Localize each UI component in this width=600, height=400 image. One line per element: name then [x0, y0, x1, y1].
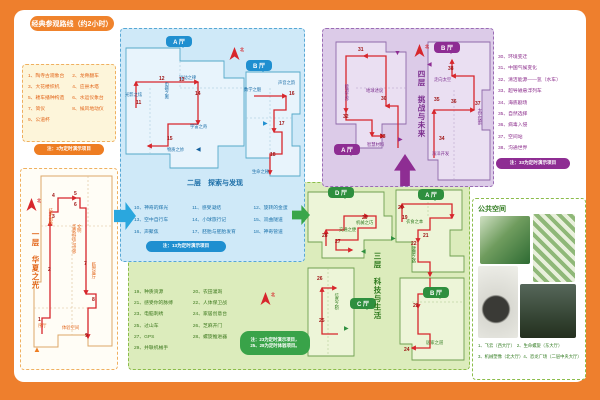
route-entry-arrow-icon: ◀ [196, 147, 201, 153]
legend-item: 7、简仪 [28, 105, 72, 112]
map-area-label: 物质之妙 [167, 148, 184, 153]
map-point: 24 [404, 348, 410, 353]
floor4-caption: 四层 挑战与未来 [416, 70, 427, 150]
map-area-label: 海洋开发 [432, 152, 449, 157]
map-point: 18 [270, 153, 276, 158]
legend-item: 2、龙骨翻车 [72, 72, 110, 79]
map-point: 38 [448, 67, 454, 72]
map-point: 32 [343, 115, 349, 120]
hall-badge-text: A 厅 [341, 145, 353, 154]
floor1-caption: 一层 华夏之光 [30, 230, 41, 298]
map-area-label: 宇宙之奇 [190, 125, 207, 130]
legend-item: 20、农田灌溉 [193, 288, 262, 295]
map-point: 14 [195, 92, 201, 97]
map-point: 9 [85, 334, 88, 339]
map-point: 21 [423, 234, 429, 239]
legend-item: 32、清洁能源——氢（水车） [498, 75, 561, 86]
map-area-label: 居家之道 [426, 341, 443, 346]
north-label: 北 [271, 292, 275, 298]
hall-badge-d: D 厅 [328, 187, 354, 198]
map-point: 2 [48, 268, 51, 273]
hall-badge-text: C 厅 [357, 299, 369, 308]
floor4-legend-list: 30、环境变迁 31、中国气候变化 32、清洁能源——氢（水车） 33、超导磁悬… [498, 52, 561, 155]
map-point: 29 [362, 216, 368, 221]
floor1-legend-box: 1、陶寺古观象台 2、龙骨翻车 3、大花楼织机 4、应县木塔 5、耧车播种构造 … [22, 64, 116, 142]
legend-item: 37、空间站 [498, 132, 561, 143]
hall-badge-a: A 厅 [418, 189, 444, 200]
map-point: 12 [159, 77, 165, 82]
map-point: 36 [451, 100, 457, 105]
route-entry-arrow-icon: ◀ [427, 62, 432, 68]
legend-item: 21、感受你的脉搏 [134, 299, 193, 306]
legend-item: 27、GPS [134, 333, 193, 340]
hall-badge-text: B 厅 [441, 43, 453, 52]
hall-badge-a: A 厅 [166, 36, 192, 47]
map-area-label: 电磁之奥 [164, 82, 169, 99]
map-area-label: 太空探索 [477, 108, 482, 125]
map-area-label: 数学之魅 [244, 88, 261, 93]
map-point: 15 [167, 137, 173, 142]
photo-life-spiral [533, 214, 575, 282]
map-point: 27 [335, 240, 341, 245]
map-point: 33 [380, 135, 386, 140]
hall-badge-text: B 厅 [430, 288, 442, 297]
legend-item: 22、人体保卫战 [193, 299, 262, 306]
legend-item: 38、沟通世界 [498, 143, 561, 154]
legend-item: 9、公道杯 [28, 116, 72, 123]
route-entry-arrow-icon: ◀ [361, 249, 366, 255]
hall-badge-text: D 厅 [335, 188, 347, 197]
north-compass-icon: 北 [414, 44, 425, 63]
map-point: 20 [398, 206, 404, 211]
floor1-note-pill: 注：3为定时演示项目 [34, 144, 104, 155]
map-point: 5 [74, 192, 77, 197]
legend-item: 6、水运仪象台 [72, 94, 110, 101]
floor1-legend-list: 1、陶寺古观象台 2、龙骨翻车 3、大花楼织机 4、应县木塔 5、耧车播种构造 … [23, 65, 115, 130]
photo-sculpture-dinosaur [478, 266, 518, 338]
map-point: 22 [411, 242, 417, 247]
public-caption-line1: 1、飞云（西大厅） 2、生命螺旋（东大厅） [478, 344, 562, 349]
map-point: 4 [52, 194, 55, 199]
map-area-label: 声音之韵 [278, 81, 295, 86]
note-text: 25、28为定时体验项目。 [250, 343, 299, 349]
note-text: 注：33为定时演示项目 [510, 160, 556, 166]
map-area-label: 衣食之本 [406, 220, 423, 225]
north-compass-icon: 北 [26, 198, 37, 217]
map-point: 13 [179, 78, 185, 83]
floor3-note-pill: 注：23为定时演示项目， 25、28为定时体验项目。 [240, 331, 310, 355]
route-entry-arrow-icon: ▶ [263, 121, 268, 127]
north-compass-icon: 北 [229, 47, 240, 66]
map-area-label: 信息之桥 [334, 293, 339, 310]
map-point: 11 [136, 101, 141, 106]
legend-item: 25、过山车 [134, 322, 193, 329]
legend-item: 5、耧车播种构造 [28, 94, 72, 101]
hall-badge-b: B 厅 [423, 287, 449, 298]
map-point: 26 [317, 277, 323, 282]
note-text: 注：3为定时演示项目 [47, 146, 91, 152]
legend-item: 4、应县木塔 [72, 83, 110, 90]
map-point: 19 [402, 216, 408, 221]
legend-item: 3、大花楼织机 [28, 83, 72, 90]
legend-item: 26、芝麻开门 [193, 322, 262, 329]
legend-item: 1、陶寺古观象台 [28, 72, 72, 79]
map-point: 7 [84, 262, 87, 267]
public-caption-line2: 3、机械塑像（北大厅）4、恐龙广场（二层中央大厅） [478, 355, 582, 360]
photo-feiyun [480, 216, 530, 264]
route-exit-arrow-icon: ▼ [394, 50, 401, 57]
legend-item: 33、超导磁悬浮列车 [498, 86, 561, 97]
legend-item: 19、种质资源 [134, 288, 193, 295]
legend-item: 29、并联机械手 [134, 344, 193, 351]
poster-title-text: 经典参观路线（约2小时） [32, 19, 113, 29]
floor4-note-pill: 注：33为定时演示项目 [496, 158, 570, 169]
map-area-label: 机械之巧 [356, 221, 373, 226]
hall-badge-text: A 厅 [173, 37, 185, 46]
map-area-label: 交通之便 [339, 228, 356, 233]
map-area-label: 智慧材料 [367, 143, 384, 148]
map-point: 6 [74, 203, 77, 208]
map-point: 28 [322, 234, 328, 239]
map-point: 35 [434, 98, 440, 103]
map-area-label: 华夏科技与世界文明 [72, 224, 82, 256]
map-area-label: 能源世界 [344, 84, 349, 101]
legend-item: 24、家居创意台 [193, 310, 262, 317]
map-point: 37 [475, 102, 481, 107]
map-area-label: 健康之路 [411, 246, 416, 263]
map-area-label: 光影之炫 [125, 93, 142, 98]
map-area-label: 走向太空 [434, 78, 451, 83]
map-point: 34 [439, 137, 445, 142]
route-entry-arrow-icon: ▶ [398, 137, 403, 143]
map-point: 1 [38, 318, 41, 323]
map-point: 17 [279, 122, 285, 127]
map-point: 16 [289, 92, 295, 97]
legend-item: 31、中国气候变化 [498, 63, 561, 74]
hall-badge-b: B 厅 [434, 42, 460, 53]
route-entry-arrow-icon: ▶ [344, 326, 349, 332]
map-point: 3 [52, 215, 55, 220]
map-area-label: 生命之秘 [252, 170, 269, 175]
map-area-label: 地球述说 [366, 89, 383, 94]
poster-title: 经典参观路线（约2小时） [30, 16, 114, 31]
map-point: 25 [319, 319, 325, 324]
museum-route-poster: 经典参观路线（约2小时） 1、陶寺古观象台 2、龙骨翻车 3、大花楼织机 4、应… [0, 0, 600, 400]
photo-dinosaur-plaza-mural [520, 284, 576, 338]
hall-badge-text: A 厅 [425, 190, 437, 199]
legend-item: 35、自然选择 [498, 109, 561, 120]
map-point: 30 [381, 97, 387, 102]
map-area-label: 体验空间 [62, 326, 79, 331]
floor3-caption: 三层 科技与生活 [372, 252, 383, 336]
legend-item: 8、候风地动仪 [72, 105, 110, 112]
map-area-label: 序厅 [38, 324, 47, 329]
legend-item: 36、病毒入侵 [498, 120, 561, 131]
map-point: 23 [413, 304, 419, 309]
north-label: 北 [425, 44, 429, 50]
map-point: 8 [92, 298, 95, 303]
route-entry-arrow-icon: ▶ [391, 236, 396, 242]
map-area-label: 临时展厅 [91, 262, 96, 279]
legend-item: 23、电脑刺绣 [134, 310, 193, 317]
legend-item: 30、环境变迁 [498, 52, 561, 63]
hall-badge-a: A 厅 [334, 144, 360, 155]
public-space-title: 公共空间 [478, 204, 506, 214]
floor4-maps [322, 28, 492, 185]
hall-badge-b: B 厅 [246, 60, 272, 71]
entrance-arrow-icon: ▲ [33, 346, 41, 354]
map-point: 31 [358, 48, 364, 53]
legend-item: 34、海底剧场 [498, 98, 561, 109]
north-label: 北 [240, 47, 244, 53]
hall-badge-text: B 厅 [253, 61, 265, 70]
north-label: 北 [37, 198, 41, 204]
